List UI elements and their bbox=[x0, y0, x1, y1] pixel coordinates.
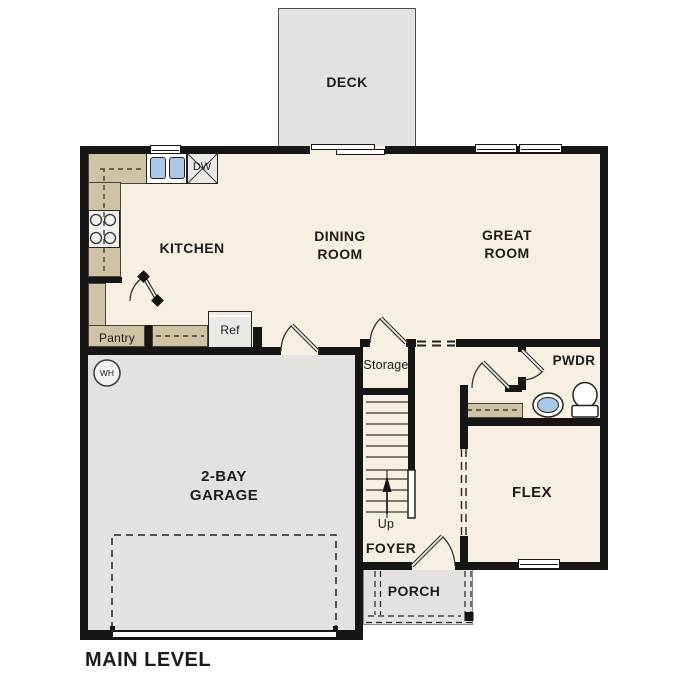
foyer-label: FOYER bbox=[366, 539, 416, 557]
garage-entry-door bbox=[281, 325, 318, 351]
main-level-title: MAIN LEVEL bbox=[85, 649, 211, 672]
great-room-label: GREAT ROOM bbox=[467, 226, 547, 262]
floor-plan: DECK KITCHEN DINING ROOM GREAT ROOM 2-BA… bbox=[0, 0, 687, 687]
dw-label: DW bbox=[193, 161, 211, 173]
stairs bbox=[366, 402, 415, 518]
cased-opening-dashes bbox=[417, 342, 455, 346]
toilet bbox=[572, 383, 598, 418]
pantry-label: Pantry bbox=[99, 331, 135, 345]
flex-label: FLEX bbox=[512, 483, 552, 502]
storage-label: Storage bbox=[363, 358, 408, 372]
dining-room-label: DINING ROOM bbox=[300, 227, 380, 263]
ref-label: Ref bbox=[220, 323, 239, 337]
powder-door bbox=[522, 350, 543, 380]
hall-closet-door bbox=[472, 362, 509, 388]
up-arrow bbox=[383, 476, 392, 514]
garage-label: 2-BAY GARAGE bbox=[177, 467, 272, 505]
storage-door bbox=[370, 318, 406, 343]
counter-centerlines bbox=[100, 169, 520, 410]
deck-label: DECK bbox=[326, 73, 367, 91]
kitchen-label: KITCHEN bbox=[159, 239, 224, 257]
powder-sink bbox=[533, 393, 563, 417]
front-door bbox=[412, 536, 455, 566]
up-label: Up bbox=[378, 517, 394, 531]
garage-door-dashed bbox=[110, 535, 338, 630]
flex-opening-dashes bbox=[462, 449, 467, 536]
wh-label: WH bbox=[100, 368, 114, 378]
porch-label: PORCH bbox=[388, 582, 441, 600]
pantry-door bbox=[130, 270, 164, 307]
porch-post bbox=[465, 612, 474, 621]
stair-railing bbox=[408, 470, 415, 518]
stove-burners bbox=[91, 215, 116, 244]
powder-label: PWDR bbox=[553, 352, 596, 370]
